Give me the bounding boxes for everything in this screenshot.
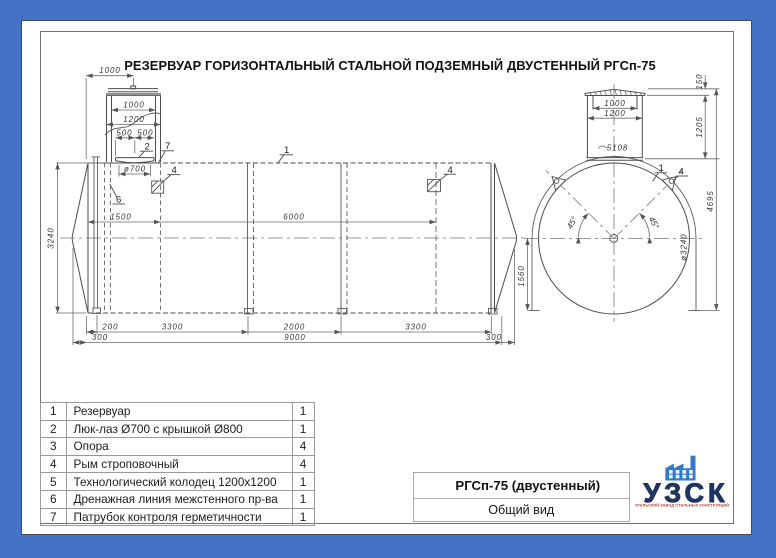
svg-text:3300: 3300: [405, 322, 427, 331]
svg-text:1560: 1560: [517, 265, 526, 287]
svg-text:1205: 1205: [695, 116, 704, 138]
svg-text:7: 7: [165, 141, 170, 152]
svg-text:45°: 45°: [564, 214, 579, 230]
svg-text:4: 4: [448, 165, 453, 176]
svg-text:9000: 9000: [284, 333, 306, 342]
svg-text:500: 500: [137, 128, 153, 137]
svg-text:2000: 2000: [283, 322, 306, 331]
svg-text:6000: 6000: [283, 213, 305, 222]
svg-text:1200: 1200: [123, 115, 145, 124]
svg-text:1: 1: [284, 145, 289, 156]
svg-text:3240: 3240: [47, 227, 56, 249]
svg-text:1000: 1000: [99, 66, 121, 75]
svg-text:3300: 3300: [162, 322, 184, 331]
svg-text:300: 300: [486, 333, 502, 342]
svg-text:4695: 4695: [706, 190, 715, 212]
svg-text:300: 300: [92, 333, 108, 342]
svg-text:1000: 1000: [123, 101, 145, 110]
svg-text:150: 150: [695, 73, 704, 89]
svg-text:1000: 1000: [604, 99, 626, 108]
svg-text:4: 4: [172, 165, 177, 176]
svg-text:1200: 1200: [604, 109, 626, 118]
svg-text:ø3240: ø3240: [680, 233, 689, 260]
svg-text:200: 200: [101, 322, 118, 331]
svg-text:2: 2: [145, 142, 150, 153]
svg-text:1: 1: [659, 163, 664, 174]
svg-text:6: 6: [116, 195, 121, 206]
svg-text:5108: 5108: [607, 144, 629, 153]
svg-text:ø700: ø700: [124, 165, 146, 174]
svg-text:45°: 45°: [647, 215, 662, 231]
svg-text:4: 4: [679, 166, 684, 177]
svg-text:500: 500: [116, 128, 132, 137]
svg-text:1500: 1500: [110, 213, 132, 222]
